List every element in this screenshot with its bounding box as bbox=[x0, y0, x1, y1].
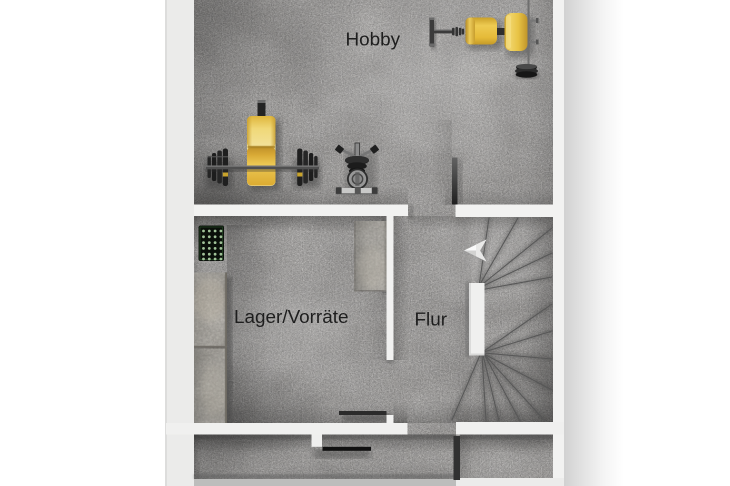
svg-text:Lager/Vorräte: Lager/Vorräte bbox=[234, 307, 348, 328]
svg-text:Flur: Flur bbox=[415, 309, 448, 330]
svg-text:Hobby: Hobby bbox=[346, 30, 401, 51]
